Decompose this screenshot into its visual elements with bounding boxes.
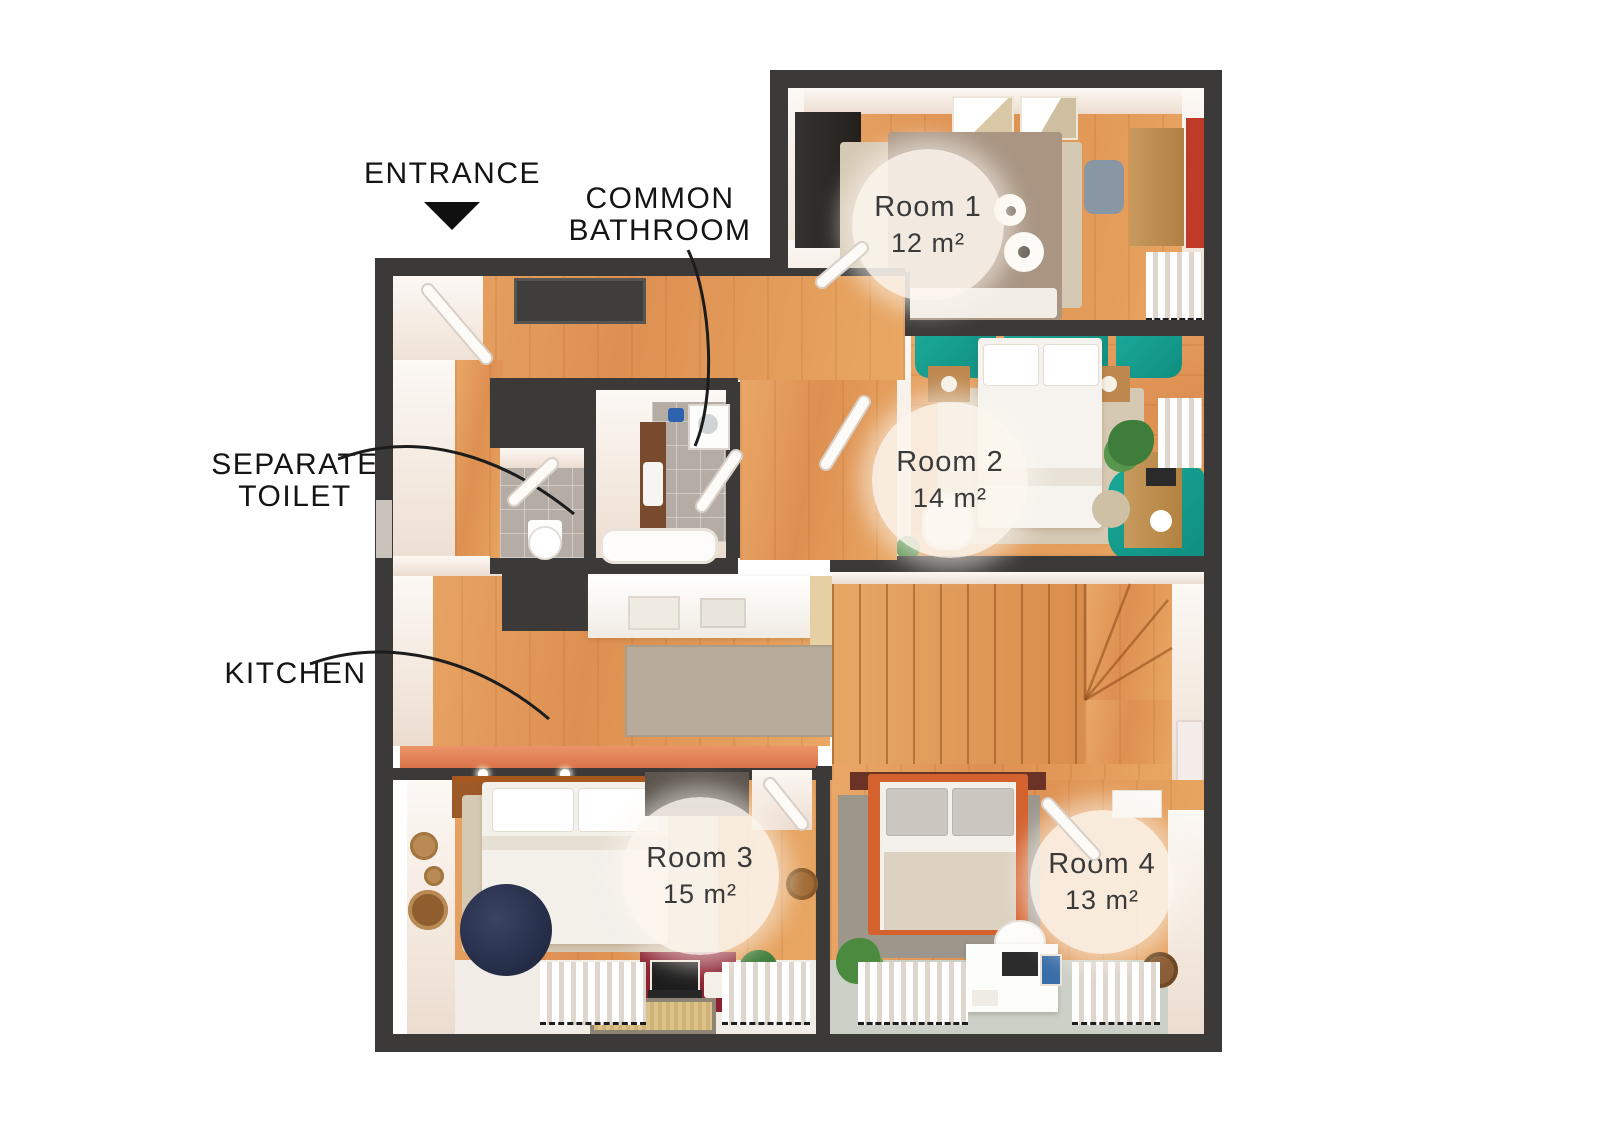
room2-desk-item — [1150, 510, 1172, 532]
kitchen-counter-wood-end — [810, 576, 832, 646]
kitchen-dark-column — [502, 565, 588, 631]
entrance-arrow-icon — [424, 202, 480, 230]
room4-curtain — [1072, 962, 1160, 1025]
outer-wall-right — [1204, 70, 1222, 1052]
wall-toilet-bathroom — [584, 390, 596, 572]
room2-pillow — [983, 344, 1039, 386]
kitchen-stove — [628, 596, 680, 630]
room1-badge: Room 1 12 m² — [852, 149, 1004, 301]
room4-curtain — [858, 962, 968, 1025]
interior-wall-block — [490, 378, 586, 448]
room2-pillow — [1043, 344, 1099, 386]
window-left-wall — [376, 500, 392, 558]
common-bathroom-label: COMMON BATHROOM — [540, 183, 780, 248]
kitchen-top-band — [393, 556, 490, 576]
wall-basket — [410, 832, 438, 860]
entrance-label-text: ENTRANCE — [364, 157, 541, 190]
kitchen-counter — [588, 576, 810, 638]
room4-name: Room 4 — [1048, 848, 1156, 881]
room1-bed-decor-dot — [1006, 206, 1016, 216]
bathroom-blue-item — [668, 408, 684, 422]
room1-desk-chair — [1084, 160, 1124, 214]
room2-desk-chair — [1092, 490, 1130, 528]
room3-curtain — [722, 962, 810, 1025]
entrance-doormat — [514, 278, 646, 324]
room3-badge: Room 3 15 m² — [621, 797, 779, 955]
outer-wall-bottom — [375, 1034, 1222, 1052]
bathroom-top-wall — [586, 378, 738, 390]
room4-desk-picture — [1040, 954, 1062, 986]
toilet-wall-band — [500, 448, 584, 468]
room4-badge: Room 4 13 m² — [1030, 810, 1174, 954]
room1-red-accent-wall — [1186, 118, 1204, 248]
room4-desk-item — [972, 990, 998, 1006]
room3-pillow — [492, 788, 574, 832]
room3-name: Room 3 — [646, 842, 754, 875]
room3-area: 15 m² — [663, 879, 737, 910]
room2-name: Room 2 — [896, 446, 1004, 479]
room4-pillow — [952, 788, 1014, 836]
toilet-bowl — [530, 528, 560, 558]
room3-pouf — [460, 884, 552, 976]
wall-room1-room2 — [897, 320, 1204, 336]
washing-machine-door — [698, 414, 718, 434]
room1-desk — [1130, 128, 1184, 246]
wall-basket — [424, 866, 444, 886]
radiator — [1176, 720, 1204, 782]
room2-curtain — [1158, 398, 1202, 468]
kitchen-label: KITCHEN — [213, 658, 378, 690]
bathroom-sink — [643, 462, 663, 506]
room1-area: 12 m² — [891, 228, 965, 259]
outer-wall-top-left — [375, 258, 788, 276]
room2-lamp — [1101, 376, 1117, 392]
kitchen-sink — [700, 598, 746, 628]
room4-pillow — [886, 788, 948, 836]
room4-area: 13 m² — [1065, 885, 1139, 916]
kitchen-left-band — [393, 576, 433, 746]
room4-right-wall-band — [1168, 810, 1204, 1034]
room1-curtain — [1146, 252, 1202, 321]
room2-lamp — [941, 376, 957, 392]
stairs-winder — [1085, 584, 1172, 700]
room2-area: 14 m² — [913, 483, 987, 514]
room4-duvet — [884, 852, 1016, 930]
room2-badge: Room 2 14 m² — [872, 402, 1028, 558]
wall-basket — [408, 890, 448, 930]
separate-toilet-label: SEPARATE TOILET — [190, 449, 400, 514]
room1-bed-decor-dot — [1018, 246, 1030, 258]
entrance-label: ENTRANCE — [330, 158, 575, 190]
room3-jute-rug — [786, 868, 818, 900]
staircase — [832, 584, 1085, 764]
room3-curtain — [540, 962, 646, 1025]
room3-door-area — [752, 770, 812, 830]
room2-desk-laptop — [1146, 468, 1176, 486]
stairs-top-band — [832, 572, 1204, 584]
kitchen-room3-wall-top — [400, 746, 818, 768]
outer-wall-room1-left — [770, 70, 788, 276]
outer-wall-top-right — [770, 70, 1222, 88]
bathtub — [600, 528, 718, 564]
room1-name: Room 1 — [874, 191, 982, 224]
outer-wall-left — [375, 258, 393, 1052]
wall-room3-room4 — [816, 766, 830, 1034]
room4-laptop — [1002, 952, 1038, 976]
floor-plan: ENTRANCE COMMON BATHROOM SEPARATE TOILET… — [0, 0, 1600, 1132]
